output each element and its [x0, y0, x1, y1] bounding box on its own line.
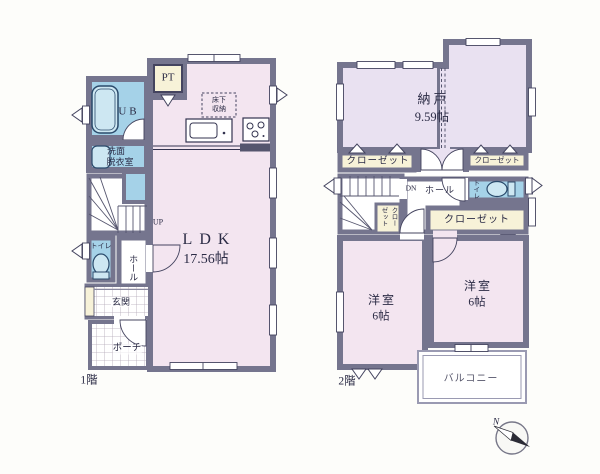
counter-end [240, 144, 270, 152]
bathtub-icon [92, 86, 118, 133]
balcony-label: バルコニー [444, 373, 499, 385]
compass-icon [494, 422, 530, 454]
stairs-up-label: UP [153, 217, 163, 226]
pantry-label: PT [162, 72, 175, 85]
shoe-cabinet [85, 287, 94, 316]
compass-north-label: N [493, 418, 499, 429]
toilet-icon [487, 182, 507, 197]
hall-2f-label: ホール [425, 185, 455, 195]
floor-plan-canvas: PT UB 床下 収納 洗面 脱衣室 UP LDK 17.56帖 トイレ ホール… [0, 0, 600, 474]
closet-small-label: クローゼット [377, 207, 398, 230]
storage-label: 納戸 [414, 93, 449, 108]
storage-size-label: 9.59帖 [415, 110, 449, 124]
toilet-tank-icon [93, 272, 109, 279]
underfloor-storage-label-1: 床下 [212, 96, 226, 104]
closet-left-label: クローゼット [346, 157, 409, 168]
room-storage-right [446, 42, 529, 150]
stairs-down-label: DN [406, 185, 417, 194]
floor1-label: 1階 [80, 374, 97, 387]
floor2-label: 2階 [338, 375, 355, 388]
floor1-plan [72, 55, 287, 370]
bedroom-left-label: 洋室 [366, 294, 396, 308]
toilet-tank-icon [508, 182, 515, 196]
vent-marks [352, 369, 382, 379]
closet-master-label: クローゼット [444, 214, 510, 226]
floor-plan-drawing [0, 0, 600, 474]
ldk-size-label: 17.56帖 [183, 252, 229, 268]
bedroom-right-label: 洋室 [462, 280, 492, 294]
entrance-label: 玄関 [111, 297, 131, 307]
wall [463, 149, 469, 172]
burner-dot-icon [263, 135, 265, 137]
bedroom-right-size-label: 6帖 [468, 296, 485, 309]
stove-icon [243, 118, 269, 141]
faucet-dot-icon [223, 132, 226, 135]
toilet-2f-label: トイレ [471, 179, 478, 199]
room-washroom-strip [124, 172, 147, 202]
sink-basin-icon [190, 123, 217, 138]
ldk-label: LDK [176, 231, 237, 249]
underfloor-storage-label-2: 収納 [212, 105, 226, 113]
closet-right-label: クローゼット [475, 157, 520, 166]
hall-1f-label: ホール [128, 255, 138, 282]
washroom-label-2: 脱衣室 [106, 157, 133, 167]
wall [415, 149, 421, 172]
toilet-icon [93, 254, 109, 274]
room-storage-left [340, 65, 440, 150]
bedroom-left-size-label: 6帖 [372, 310, 389, 323]
bath-label: UB [118, 106, 139, 119]
toilet-1f-label: トイレ [91, 242, 112, 250]
porch-label: ポーチ [113, 344, 142, 355]
washroom-label-1: 洗面 [107, 146, 125, 156]
